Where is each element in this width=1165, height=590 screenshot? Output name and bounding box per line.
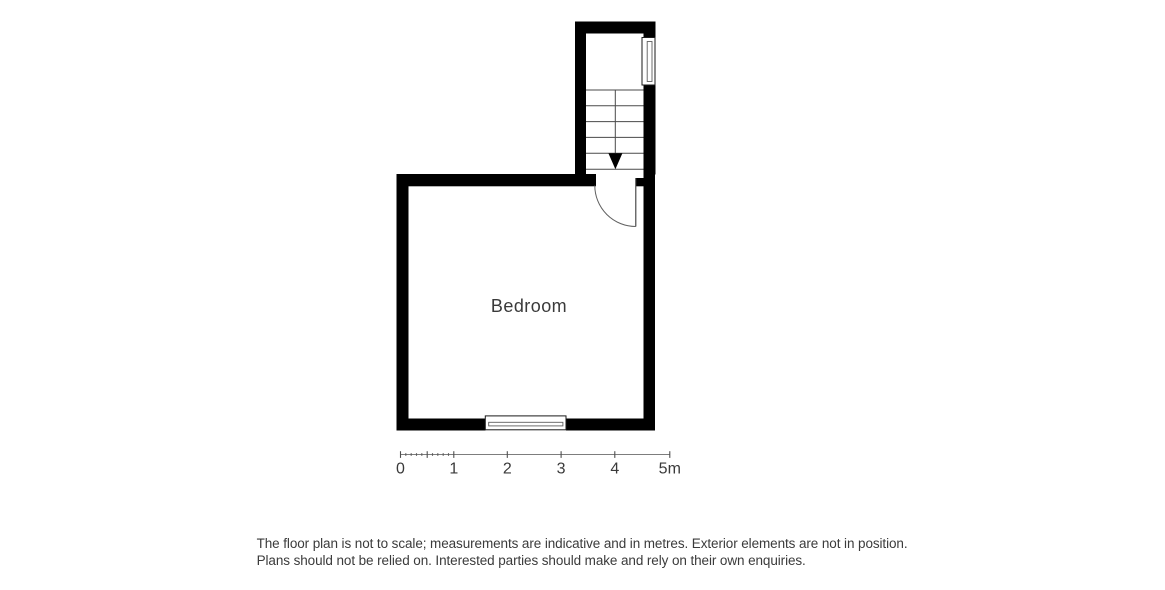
svg-text:1: 1	[449, 461, 458, 478]
svg-text:4: 4	[610, 461, 619, 478]
svg-text:Bedroom: Bedroom	[491, 296, 567, 316]
svg-text:Plans should not be relied on.: Plans should not be relied on. Intereste…	[257, 553, 806, 568]
svg-text:5m: 5m	[659, 461, 681, 478]
svg-text:3: 3	[557, 461, 566, 478]
svg-text:The floor plan is not to scale: The floor plan is not to scale; measurem…	[257, 536, 908, 551]
svg-text:2: 2	[503, 461, 512, 478]
svg-text:0: 0	[396, 461, 405, 478]
